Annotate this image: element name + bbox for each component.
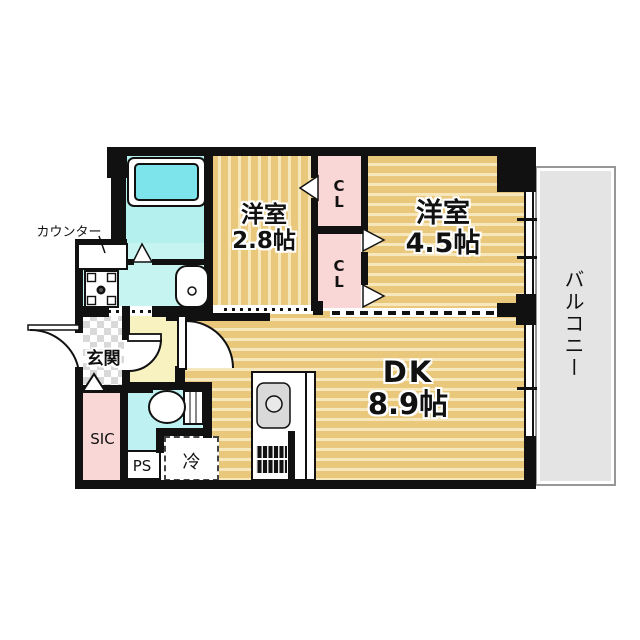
kitchen-notch-wall [288,431,295,483]
wall-closet-left-upper [311,154,318,178]
wall-toilet-north [128,382,208,390]
wall-closet-bottom-stub [313,301,323,315]
counter-label: カウンター [30,221,108,240]
window-tick [517,218,537,221]
wall-bath-left [111,147,126,247]
wall-closet-right-upper [361,154,368,228]
bedroom2-size: 4.5帖 [406,228,481,259]
dk-size: 8.9帖 [368,387,448,421]
wall-left-upper [75,239,83,333]
toilet-floor [124,388,206,432]
shoe-closet-label: SIC [83,430,122,448]
wall-hall-dk-stub [175,366,185,388]
bedroom1-name: 洋室 [241,202,287,228]
refrigerator-label: 冷 [164,448,219,474]
wall-toilet-annex-east [156,428,164,453]
window-dk [524,325,534,436]
washroom-sliding-door-track [108,310,152,313]
bedroom2-name: 洋室 [416,198,470,229]
entrance-label: 玄関 [83,344,124,369]
wall-bath-divider-right [152,259,206,265]
window-tick [517,256,537,259]
closet-lower-label: CL [330,250,348,296]
window-bedroom2 [524,192,534,294]
washroom-floor [80,243,213,313]
wall-bath-divider-left [124,259,134,265]
bedroom1-label: 洋室 2.8帖 [208,203,320,255]
pipe-space-label: PS [123,457,161,475]
entrance-door [28,325,79,372]
wall-dk-north [166,313,270,321]
wall-bottom [75,480,536,489]
wall-entrance-hall-upper [122,306,130,340]
floorplan: 洋室 2.8帖 洋室 4.5帖 DK 8.9帖 CL CL 玄関 SIC PS … [0,0,640,640]
dk-name: DK [383,355,434,389]
dk-label: DK 8.9帖 [300,356,516,421]
wall-partition-right-stub [497,303,524,317]
wall-topright-block [497,147,536,192]
bedroom2-label: 洋室 4.5帖 [373,199,513,259]
bedroom1-partition-track [224,308,314,311]
bedroom2-partition-track [332,311,495,315]
balcony-label: バルコニー [535,166,612,482]
wall-washroom-south-left [75,306,109,317]
wall-closet-right-mid [361,252,368,285]
wall-top [107,147,535,156]
bedroom1-size: 2.8帖 [232,228,296,254]
closet-upper-label: CL [330,170,348,216]
hallway-floor [130,314,178,387]
window-tick [517,387,537,390]
stove-icon [256,446,287,473]
